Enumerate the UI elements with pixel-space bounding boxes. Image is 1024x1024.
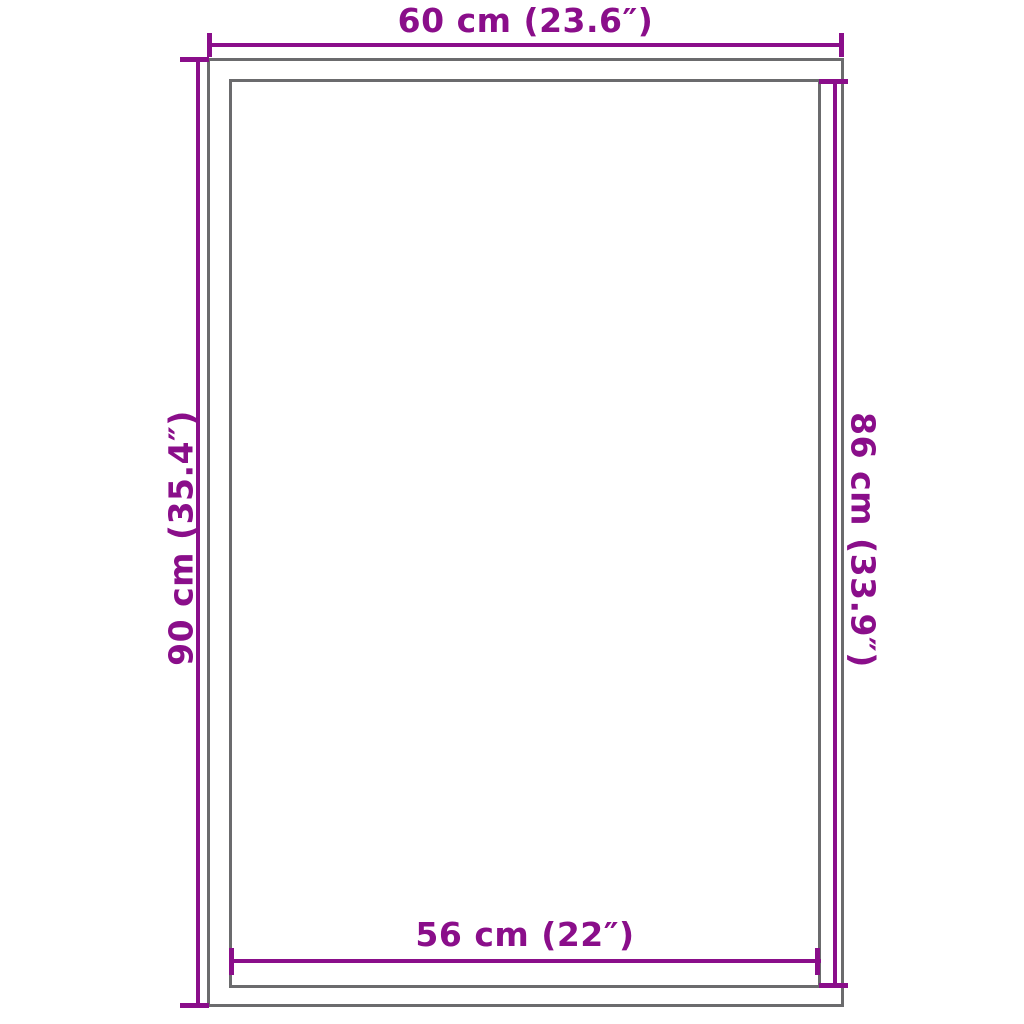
bottom-dimension-label: 56 cm (22″) xyxy=(229,915,821,955)
right-dimension-line xyxy=(833,79,837,988)
left-dimension-label: 90 cm (35.4″) xyxy=(162,410,201,666)
top-dimension-label: 60 cm (23.6″) xyxy=(207,1,844,41)
dimension-diagram: 60 cm (23.6″) 90 cm (35.4″) 86 cm (33.9″… xyxy=(0,0,1024,1024)
inner-product-outline xyxy=(229,79,821,988)
right-dimension-label: 86 cm (33.9″) xyxy=(844,412,883,668)
left-dimension-tick-top xyxy=(180,57,209,62)
left-dimension-tick-bottom xyxy=(180,1003,209,1008)
top-dimension-line xyxy=(207,43,844,47)
bottom-dimension-line xyxy=(229,959,821,963)
right-dimension-tick-top xyxy=(819,79,848,84)
right-dimension-tick-bottom xyxy=(819,983,848,988)
